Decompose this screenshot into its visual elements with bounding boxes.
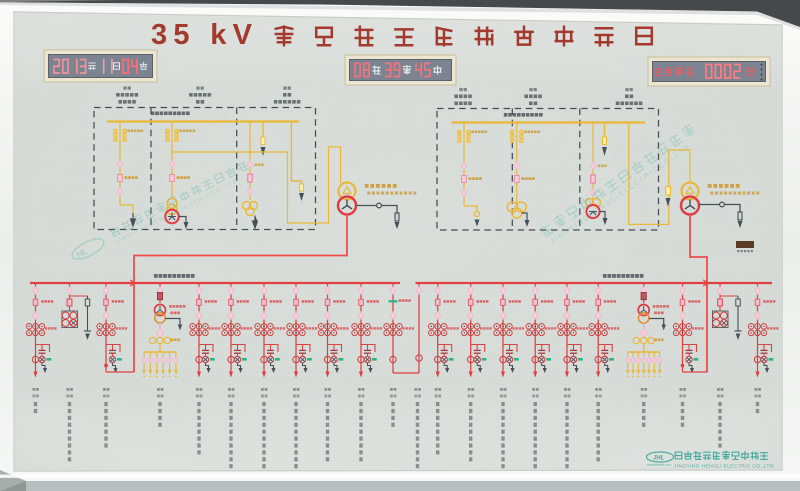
svg-text:JHL: JHL: [653, 456, 665, 462]
svg-text:JINGYING HENGLI ELECTRIC CO.,L: JINGYING HENGLI ELECTRIC CO.,LTD: [674, 464, 774, 470]
svg-text:www.jyhengli.com: www.jyhengli.com: [647, 463, 671, 467]
svg-text:35 kV: 35 kV: [151, 19, 258, 51]
